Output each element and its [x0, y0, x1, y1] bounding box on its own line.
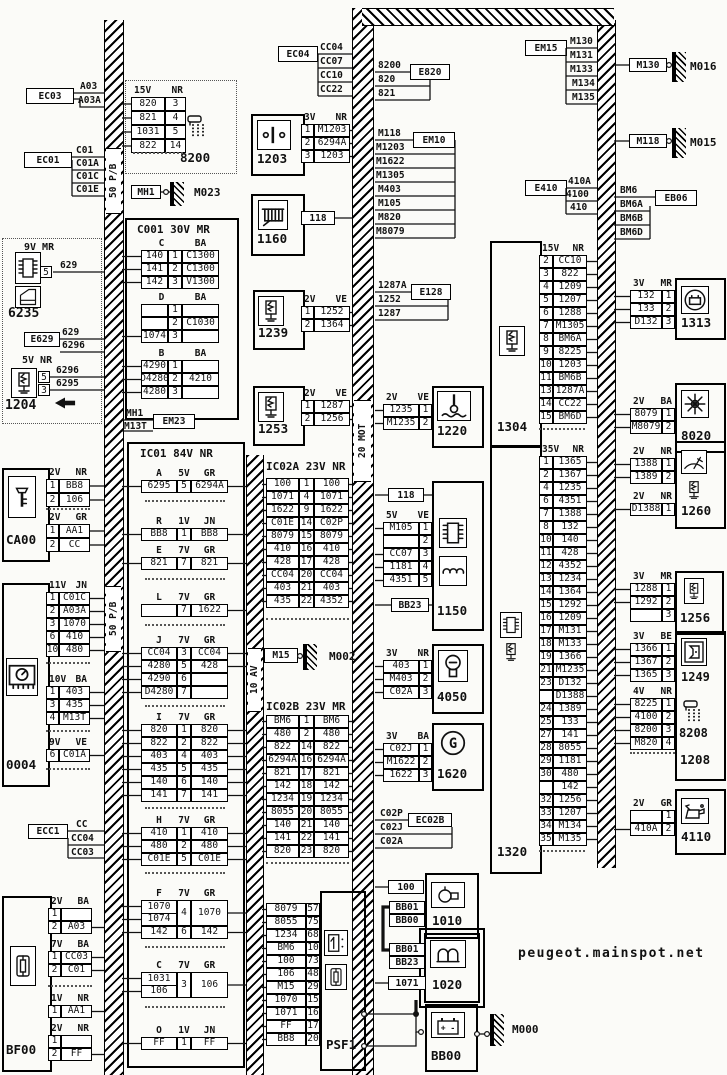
ic01-h-cell: 480: [141, 840, 177, 853]
conn-1249-header-cell: BE: [661, 631, 672, 642]
conn-1320-cell: 1235: [553, 482, 587, 495]
c001-d-cell: C1030: [182, 317, 219, 330]
tag-e820: E820: [410, 64, 450, 80]
t0004-ve-cell: C01A: [59, 749, 90, 762]
conn-1320-row-10: 141364: [539, 586, 587, 599]
conn-1239-cell: 2: [301, 319, 314, 332]
conn-1304-row-12: 15BM6D: [539, 411, 587, 424]
ic01-e-header-cell: GR: [191, 545, 228, 556]
conn-1320-cell: M1235: [553, 664, 587, 677]
conn-1320-cell: 6: [539, 495, 553, 508]
conn-1304-cell: 4: [539, 281, 553, 294]
ic01-f-row-1: 1426142: [141, 926, 228, 939]
conn-1313-row-1: 1332: [630, 303, 675, 316]
ic01-c-cell: 1031106: [141, 972, 177, 998]
c001-d-cell: [141, 304, 168, 317]
ic01-i-cell: 403: [141, 750, 177, 763]
box-psf1-label: PSF1: [326, 1037, 356, 1052]
conn-1320-cell: 29: [539, 755, 553, 768]
tag-e410: E410: [525, 180, 567, 196]
dotted-separator-1: [145, 578, 225, 580]
dotted-separator-5: [145, 872, 225, 874]
t0004-jn-cell: 410: [59, 631, 90, 644]
tag-m130: M130: [629, 58, 667, 72]
conn-1304-header: 15VNR: [539, 243, 587, 254]
conn-1260b-cell: 1: [662, 503, 675, 516]
ic02b-cell: 18: [299, 780, 314, 793]
psf1-pins-cell: 8079: [266, 903, 306, 916]
conn-1239-header-cell: VE: [336, 294, 347, 305]
conn-1203-cell: 6294A: [314, 137, 350, 150]
c001-b-cell: [182, 386, 219, 399]
bf00-ba1-cell: A03: [61, 921, 92, 934]
c001-d-cell: [182, 330, 219, 343]
dotted-separator-18: [133, 152, 183, 154]
ground-m016: M016: [672, 52, 686, 82]
conn-1320-row-14: 18M133: [539, 638, 587, 651]
psf1-pins-cell: 1070: [266, 994, 306, 1007]
c001-c-cell: 140: [141, 250, 168, 263]
conn-1249-row-2: 13653: [630, 669, 675, 682]
ic02b-row-2: 82214822: [266, 741, 349, 754]
c001-d-cell: 1: [168, 304, 182, 317]
conn-1203-header-cell: NR: [336, 112, 347, 123]
ic01-e-cell: 821: [191, 557, 228, 570]
psf1-pins-cell: 75: [306, 916, 320, 929]
c001-b-row-1: D428024210: [141, 373, 219, 386]
ground-m002-hatch: [307, 644, 317, 670]
battery-icon: + -: [431, 1012, 465, 1038]
bf00-ba2-cell: C01: [61, 964, 92, 977]
ic01-c-header-cell: C: [141, 960, 177, 971]
dotted-separator-13: [266, 618, 349, 620]
dotted-separator-0: [145, 500, 225, 502]
conn-1320-cell: 142: [553, 781, 587, 794]
w-8200: 8200: [378, 60, 401, 71]
ic01-r-header-cell: JN: [191, 516, 228, 527]
ic01-l-header-cell: L: [141, 592, 177, 603]
psf1-pins-cell: FF: [266, 1020, 306, 1033]
ca00-nr-header-cell: NR: [76, 467, 87, 478]
ic02b-row-8: 14021140: [266, 819, 349, 832]
ic01-i-row-0: 8201820: [141, 724, 228, 737]
ic02a-cell: 428: [266, 556, 299, 569]
psf1-pins-cell: BM6: [266, 942, 306, 955]
ic01-l-cell: 1622: [191, 604, 228, 617]
ic01-l-header-cell: 7V: [177, 592, 191, 603]
conn-1304-row-5: 7M1305: [539, 320, 587, 333]
conn-1320-cell: [539, 781, 553, 794]
conn-1620-header: 3VBA: [383, 731, 432, 742]
injector-icon: [258, 392, 284, 422]
ic01-f-header-cell: 7V: [177, 888, 191, 899]
conn-1253-cell: 1287: [314, 400, 350, 413]
conn-1313-cell: D132: [630, 316, 662, 329]
psf1-pins-cell: 73: [306, 955, 320, 968]
ic01-j-cell: 7: [177, 686, 191, 699]
conn-1150-header-cell: VE: [418, 510, 429, 521]
conn-8020-header: 2VBA: [630, 396, 675, 407]
conn-1150-cell: 1: [419, 522, 432, 535]
w-m1305: M1305: [376, 170, 405, 181]
conn-1320-cell: 1367: [553, 469, 587, 482]
conn-4050-row-2: C02A3: [383, 686, 432, 699]
conn-1320-row-15: 191366: [539, 651, 587, 664]
ic01-i-row-2: 4034403: [141, 750, 228, 763]
conn-1208-cell: 4100: [630, 711, 662, 724]
conn-1260a-row-0: 13881: [630, 458, 675, 471]
ic02a-row-1: 107141071: [266, 491, 349, 504]
w-cc: CC: [76, 819, 87, 830]
conn-8200-cell: 822: [131, 139, 165, 153]
ic01-j-header-cell: GR: [191, 635, 228, 646]
injector-icon: [684, 578, 704, 604]
conn-1320-cell: 132: [553, 521, 587, 534]
ca00-gr-header-cell: 2V: [49, 512, 60, 523]
conn-1239-row-0: 11252: [301, 306, 350, 319]
dotted-separator-4: [145, 807, 225, 809]
bf00-nr2-header-cell: 2V: [51, 1023, 62, 1034]
conn-1150-cell: 1181: [383, 561, 419, 574]
t0004-ba-cell: 403: [59, 686, 90, 699]
w-cc04l: CC04: [71, 833, 94, 844]
t0004-ve-header-cell: 9V: [49, 737, 60, 748]
t0004-jn-cell: 3: [46, 618, 59, 631]
ic01-i-cell: 140: [141, 776, 177, 789]
lbl-6235: 6235: [8, 306, 39, 321]
ic02a-cell: 9: [299, 504, 314, 517]
conn-1320-cell: M134: [553, 820, 587, 833]
box-bf00-label: BF00: [6, 1042, 36, 1057]
conn-8200-row-0: 8203: [131, 97, 186, 111]
ic02b-row-3: 6294A166294A: [266, 754, 349, 767]
ic01-c-cell: 3: [177, 972, 191, 998]
charge-warning-icon: [681, 286, 709, 314]
ic02b-cell: BM6: [266, 715, 299, 728]
box-1256-label: 1256: [680, 610, 710, 625]
box-1203-label: 1203: [257, 151, 287, 166]
c001-d-row-1: 2C1030: [141, 317, 219, 330]
conn-1203-cell: 3: [301, 150, 314, 163]
conn-1249-cell: 1367: [630, 656, 662, 669]
conn-1150-row-2: CC073: [383, 548, 432, 561]
conn-1304-row-11: 14CC22: [539, 398, 587, 411]
key-icon: [8, 476, 36, 518]
conn-1320-cell: 1181: [553, 755, 587, 768]
ic01-c-subcell: 1031: [142, 973, 176, 985]
svg-text:+ -: + -: [441, 1024, 455, 1033]
ic01-j-header-cell: 7V: [177, 635, 191, 646]
ground-m023-label: M023: [194, 186, 221, 199]
wiper-icon: [681, 450, 707, 474]
ic02b-cell: 140: [266, 819, 299, 832]
conn-1304-cell: 9: [539, 346, 553, 359]
ca00-gr-cell: 2: [46, 538, 59, 552]
conn-1320-header-cell: NR: [573, 444, 584, 455]
conn-1313-row-2: D1323: [630, 316, 675, 329]
conn-1320-cell: 10: [539, 534, 553, 547]
ic01-o-header-cell: O: [141, 1025, 177, 1036]
conn-1256-cell: 2: [662, 596, 675, 609]
ic02a-cell: 435: [266, 595, 299, 608]
t0004-ba-row-2: 4M13T: [46, 712, 90, 725]
bf00-nr1-header: 1VNR: [48, 993, 92, 1004]
conn-1208-header: 4VNR: [630, 686, 675, 697]
conn-4050-row-1: M4032: [383, 673, 432, 686]
ic01-i-header: I7VGR: [141, 712, 228, 723]
ic02b-cell: 6294A: [314, 754, 349, 767]
c001-b-cell: 4290: [141, 360, 168, 373]
t0004-ba-header-cell: BA: [76, 674, 87, 685]
psf1-pins-row-4: 10073: [266, 955, 320, 968]
conn-4110-header-cell: 2V: [633, 798, 644, 809]
c001-d-header-cell: BA: [182, 292, 219, 303]
ic01-i-cell: 820: [141, 724, 177, 737]
ic01-h-cell: C01E: [141, 853, 177, 866]
w-cc10: CC10: [320, 70, 343, 81]
w-m105: M105: [378, 198, 401, 209]
t0004-jn-header-cell: 11V: [49, 580, 66, 591]
conn-8200-header: 15VNR: [131, 85, 186, 96]
c001-d-row-0: 1: [141, 304, 219, 317]
tag-em23: EM23: [153, 414, 195, 429]
ic01-h-cell: 410: [191, 827, 228, 840]
c001-b-cell: 2: [168, 373, 182, 386]
conn-1304-cell: 1203: [553, 359, 587, 372]
w-a03: A03: [80, 81, 97, 92]
conn-8020-cell: 2: [662, 421, 675, 434]
heater-icon: [258, 200, 288, 230]
conn-1304-cell: BM6A: [553, 333, 587, 346]
w-820: 820: [378, 74, 395, 85]
conn-1320-row-21: 27141: [539, 729, 587, 742]
bf00-nr1-cell: AA1: [61, 1005, 92, 1018]
ic01-a-header: A5VGR: [141, 468, 228, 479]
chip-icon: [15, 252, 41, 284]
conn-8020-cell: 8079: [630, 408, 662, 421]
conn-1304-row-8: 101203: [539, 359, 587, 372]
conn-1320-row-3: 64351: [539, 495, 587, 508]
lbl-5v-nr: 5V NR: [22, 355, 52, 366]
ground-m023-hatch: [174, 182, 184, 206]
ground-m002: M002: [303, 644, 317, 670]
ca00-nr-cell: 1: [46, 479, 59, 493]
ic02a-cell: CC04: [266, 569, 299, 582]
conn-1320-cell: 18: [539, 638, 553, 651]
conn-1320-cell: 133: [553, 716, 587, 729]
c001-c-cell: 1: [168, 250, 182, 263]
ic02b-cell: 22: [299, 832, 314, 845]
ic01-r-cell: BB8: [141, 528, 177, 541]
conn-1320-cell: 141: [553, 729, 587, 742]
conn-1304-cell: 7: [539, 320, 553, 333]
c001-b-cell: 1: [168, 360, 182, 373]
c001-c-cell: 2: [168, 263, 182, 276]
conn-1304-cell: 15: [539, 411, 553, 424]
conn-1239-header: 2VVE: [301, 294, 350, 305]
conn-1320-row-5: 8132: [539, 521, 587, 534]
ic02a-cell: CC04: [314, 569, 349, 582]
conn-1304-cell: 1288: [553, 307, 587, 320]
dotted-separator-6: [145, 946, 225, 948]
ic02a-cell: 410: [266, 543, 299, 556]
w-m8079: M8079: [376, 226, 405, 237]
conn-1203-header: 3VNR: [301, 112, 350, 123]
w-cc07: CC07: [320, 56, 343, 67]
conn-1256-header: 3VMR: [630, 571, 675, 582]
ic02b-cell: 17: [299, 767, 314, 780]
tag-e128: E128: [411, 284, 451, 300]
conn-1320-cell: M135: [553, 833, 587, 846]
c001-c-row-2: 1423V1300: [141, 276, 219, 289]
conn-1304-cell: 10: [539, 359, 553, 372]
conn-1320-cell: D132: [553, 677, 587, 690]
ic01-c-header-cell: 7V: [177, 960, 191, 971]
conn-1313-cell: 1: [662, 290, 675, 303]
ic02b-cell: 21: [299, 819, 314, 832]
psf1-pins-cell: 106: [266, 968, 306, 981]
conn-1320-cell: M133: [553, 638, 587, 651]
ic01-j-cell: 4280: [141, 660, 177, 673]
tag-em10: EM10: [413, 132, 455, 148]
ic01-j-cell: 5: [177, 660, 191, 673]
ic02b-cell: 822: [314, 741, 349, 754]
conn-1320-cell: 34: [539, 820, 553, 833]
conn-1320-row-20: 25133: [539, 716, 587, 729]
ic01-r-row-0: BB81BB8: [141, 528, 228, 541]
ic01-h-cell: 2: [177, 840, 191, 853]
pin-1204-3: 3: [38, 384, 50, 396]
ic01-h-row-1: 4802480: [141, 840, 228, 853]
ic01-j-cell: 428: [191, 660, 228, 673]
wiring-diagram: peugeot.mainspot.net 50 P/B50 P/B20 MOT1…: [0, 0, 727, 1075]
conn-1320-cell: 428: [553, 547, 587, 560]
conn-1220-header-cell: VE: [418, 392, 429, 403]
conn-4110-row-0: 1: [630, 810, 675, 823]
conn-1304-cell: 3: [539, 268, 553, 281]
conn-4110-cell: 410A: [630, 823, 662, 836]
box-4110-label: 4110: [681, 829, 711, 844]
ground-m002-label: M002: [329, 650, 356, 663]
box-0004-label: 0004: [6, 757, 36, 772]
conn-1208-header-cell: NR: [661, 686, 672, 697]
psf1-pins-cell: M15: [266, 981, 306, 994]
ground-m000-label: M000: [512, 1023, 539, 1036]
box-1253-label: 1253: [258, 421, 288, 436]
generator-icon: G: [438, 728, 468, 758]
c001-c-cell: C1300: [182, 263, 219, 276]
conn-1304-row-2: 41209: [539, 281, 587, 294]
conn-1260a-header-cell: NR: [661, 446, 672, 457]
conn-1304-row-0: 2CC10: [539, 255, 587, 268]
ca00-nr-row-1: 2106: [46, 493, 90, 507]
conn-1249-cell: 1366: [630, 643, 662, 656]
ic01-e-header: E7VGR: [141, 545, 228, 556]
conn-1239-cell: 1: [301, 306, 314, 319]
conn-1304-cell: M1305: [553, 320, 587, 333]
dotted-separator-3: [145, 705, 225, 707]
ic02b-cell: 142: [266, 780, 299, 793]
conn-1620-row-1: M16222: [383, 756, 432, 769]
ic01-r-cell: 1: [177, 528, 191, 541]
conn-1320-row-18: D1388: [539, 690, 587, 703]
ic02b-row-5: 14218142: [266, 780, 349, 793]
ic01-o-header: O1VJN: [141, 1025, 228, 1036]
bus-bar-4: [362, 8, 614, 26]
conn-1620-cell: 1: [419, 743, 432, 756]
conn-1304-cell: CC22: [553, 398, 587, 411]
dotted-separator-2: [145, 624, 225, 626]
tag-100-1010: 100: [388, 880, 424, 894]
tag-eb06: EB06: [655, 190, 697, 206]
conn-1260b-row-0: D13881: [630, 503, 675, 516]
conn-1320-cell: 25: [539, 716, 553, 729]
tag-118-1160: 118: [301, 211, 335, 225]
c001-d-cell: [141, 317, 168, 330]
conn-1320-cell: 4352: [553, 560, 587, 573]
ic02b-row-0: BM61BM6: [266, 715, 349, 728]
ic01-i-cell: 822: [141, 737, 177, 750]
t0004-jn-cell: 6: [46, 631, 59, 644]
door-icon: [15, 286, 41, 308]
ic01-f-subcell: 1074: [142, 913, 176, 926]
ic02b-cell: 8055: [314, 806, 349, 819]
t0004-jn-row-2: 31070: [46, 618, 90, 631]
conn-1260a-cell: 1: [662, 458, 675, 471]
ic01-o-row-0: FF1FF: [141, 1037, 228, 1050]
bf00-ba2-row-1: 2C01: [48, 964, 92, 977]
conn-1313-header-cell: MR: [661, 278, 672, 289]
tag-118-1150: 118: [388, 488, 424, 502]
bf00-ba1-row-0: 1: [48, 908, 92, 921]
psf1-pins-row-8: 107116: [266, 1007, 320, 1020]
w-410: 410: [570, 202, 587, 213]
conn-1620-row-0: C02J1: [383, 743, 432, 756]
ic02b-cell: 480: [266, 728, 299, 741]
box-1220-label: 1220: [437, 423, 467, 438]
bf00-ba2-cell: 2: [48, 964, 61, 977]
conn-1253-cell: 1256: [314, 413, 350, 426]
conn-1203-header-cell: 3V: [304, 112, 315, 123]
conn-1253-row-0: 11287: [301, 400, 350, 413]
conn-8020-row-0: 80791: [630, 408, 675, 421]
conn-4110-cell: 2: [662, 823, 675, 836]
conn-1313-cell: 3: [662, 316, 675, 329]
ic01-j-row-0: CC043CC04: [141, 647, 228, 660]
t0004-jn-header-cell: JN: [76, 580, 87, 591]
psf1-pins-cell: 16: [306, 1007, 320, 1020]
bf00-ba2-header-cell: 7V: [51, 939, 62, 950]
box-4050-label: 4050: [437, 689, 467, 704]
conn-1320-row-26: 321256: [539, 794, 587, 807]
w-cc03: CC03: [71, 847, 94, 858]
box-ca00-label: CA00: [6, 532, 36, 547]
w-m131: M131: [570, 50, 593, 61]
tag-bb23-1150: BB23: [391, 598, 429, 612]
conn-1208-header-cell: 4V: [633, 686, 644, 697]
psf1-pins-cell: 1234: [266, 929, 306, 942]
conn-8020-row-1: M80792: [630, 421, 675, 434]
conn-1620-cell: 2: [419, 756, 432, 769]
ic01-o-header-cell: 1V: [177, 1025, 191, 1036]
conn-1320-cell: 1292: [553, 599, 587, 612]
t0004-jn-header: 11VJN: [46, 580, 90, 591]
conn-1260b-cell: D1388: [630, 503, 662, 516]
ic01-j-row-1: 42805428: [141, 660, 228, 673]
psf1-pins-row-9: FF17: [266, 1020, 320, 1033]
conn-8200-cell: 14: [165, 139, 186, 153]
ic01-i-cell: 141: [191, 789, 228, 802]
